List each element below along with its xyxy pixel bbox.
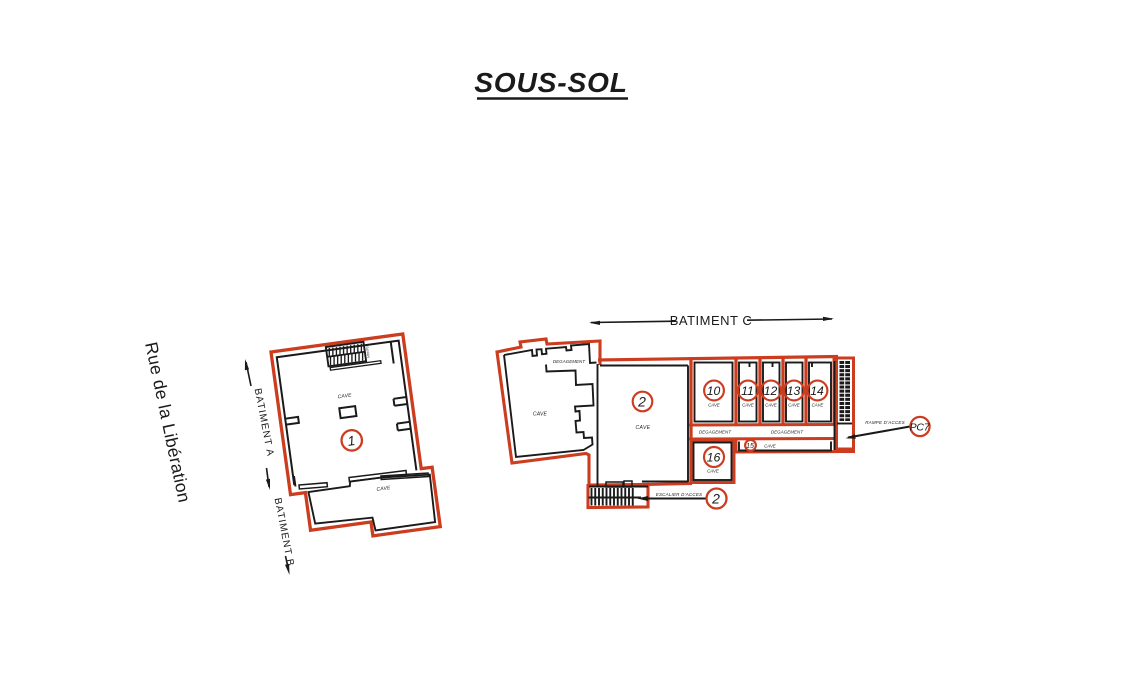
svg-text:SOUS-SOL: SOUS-SOL bbox=[474, 66, 628, 98]
svg-text:DEGAGEMENT: DEGAGEMENT bbox=[699, 430, 731, 435]
svg-text:14: 14 bbox=[810, 384, 824, 398]
svg-text:ESCALIER D’ACCES: ESCALIER D’ACCES bbox=[656, 492, 702, 497]
svg-text:CAVE: CAVE bbox=[636, 425, 651, 431]
svg-text:11: 11 bbox=[741, 384, 754, 398]
svg-text:16: 16 bbox=[707, 451, 721, 465]
svg-text:12: 12 bbox=[764, 384, 778, 398]
svg-text:CAVE: CAVE bbox=[708, 403, 720, 408]
svg-text:10: 10 bbox=[707, 384, 721, 398]
svg-text:CAVE: CAVE bbox=[765, 403, 777, 408]
svg-text:DEGAGEMENT: DEGAGEMENT bbox=[553, 359, 585, 364]
svg-text:RAMPE D’ACCES: RAMPE D’ACCES bbox=[865, 420, 905, 425]
svg-text:BATIMENT C: BATIMENT C bbox=[670, 313, 753, 328]
svg-text:CAVE: CAVE bbox=[742, 403, 754, 408]
svg-text:2: 2 bbox=[711, 491, 720, 507]
svg-text:15: 15 bbox=[746, 443, 754, 450]
svg-text:CAVE: CAVE bbox=[533, 412, 548, 418]
svg-text:CAVE: CAVE bbox=[764, 444, 776, 449]
svg-text:CAVE: CAVE bbox=[707, 469, 719, 474]
svg-text:2: 2 bbox=[637, 394, 646, 410]
svg-text:CAVE: CAVE bbox=[788, 403, 800, 408]
svg-text:CAVE: CAVE bbox=[812, 403, 824, 408]
svg-text:DEGAGEMENT: DEGAGEMENT bbox=[771, 430, 803, 435]
svg-text:13: 13 bbox=[787, 384, 801, 398]
svg-text:PC7: PC7 bbox=[910, 422, 931, 434]
